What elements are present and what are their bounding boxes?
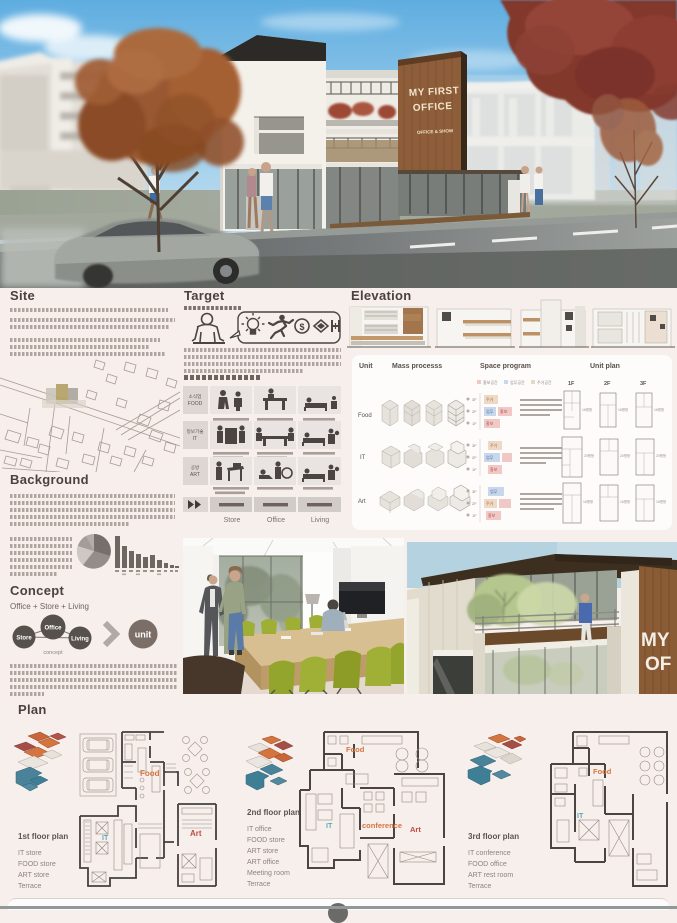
svg-text:OF: OF bbox=[645, 654, 671, 675]
svg-text:1F: 1F bbox=[472, 421, 477, 426]
svg-text:Store: Store bbox=[16, 636, 32, 642]
svg-text:1F: 1F bbox=[472, 513, 477, 518]
svg-text:20평형: 20평형 bbox=[656, 453, 666, 458]
svg-text:FOOD: FOOD bbox=[188, 401, 203, 407]
svg-text:Art: Art bbox=[410, 825, 421, 834]
svg-text:Unit plan: Unit plan bbox=[590, 363, 620, 370]
svg-text:홍보: 홍보 bbox=[490, 466, 498, 472]
svg-text:MY: MY bbox=[641, 630, 670, 651]
svg-text:2F: 2F bbox=[604, 381, 611, 387]
svg-text:Art: Art bbox=[190, 829, 202, 838]
svg-text:공방: 공방 bbox=[191, 464, 200, 470]
svg-text:1F: 1F bbox=[568, 381, 575, 387]
svg-text:concept: concept bbox=[43, 650, 63, 656]
svg-text:Unit: Unit bbox=[359, 363, 373, 370]
svg-text:3F: 3F bbox=[472, 489, 477, 494]
svg-text:2F: 2F bbox=[472, 501, 477, 506]
svg-text:1F: 1F bbox=[472, 467, 477, 472]
svg-text:홍보: 홍보 bbox=[500, 408, 508, 414]
svg-text:Living: Living bbox=[71, 637, 89, 643]
svg-text:주거공간: 주거공간 bbox=[537, 379, 552, 385]
svg-text:홍보공간: 홍보공간 bbox=[483, 379, 498, 385]
svg-text:16평형: 16평형 bbox=[620, 499, 630, 504]
svg-text:16평형: 16평형 bbox=[618, 407, 628, 412]
svg-text:OFFICE: OFFICE bbox=[413, 101, 453, 114]
svg-text:정보기술: 정보기술 bbox=[187, 428, 204, 435]
svg-text:2F: 2F bbox=[472, 455, 477, 460]
svg-text:20평형: 20평형 bbox=[620, 453, 630, 458]
svg-text:ART: ART bbox=[190, 472, 200, 478]
svg-text:16평형: 16평형 bbox=[582, 407, 592, 412]
svg-text:주거: 주거 bbox=[486, 500, 494, 506]
svg-text:3F: 3F bbox=[472, 397, 477, 402]
svg-text:conference: conference bbox=[362, 821, 402, 830]
svg-text:Mass processs: Mass processs bbox=[392, 363, 442, 370]
svg-text:Food: Food bbox=[358, 413, 372, 419]
svg-text:Food: Food bbox=[346, 745, 365, 754]
svg-text:업무: 업무 bbox=[486, 454, 494, 460]
svg-text:unit: unit bbox=[135, 630, 152, 640]
svg-text:IT: IT bbox=[102, 835, 109, 842]
svg-text:IT: IT bbox=[326, 823, 333, 830]
svg-text:2F: 2F bbox=[472, 409, 477, 414]
svg-text:Food: Food bbox=[140, 769, 160, 778]
svg-text:IT: IT bbox=[577, 813, 584, 820]
svg-text:3F: 3F bbox=[640, 381, 647, 387]
svg-text:소식업: 소식업 bbox=[189, 393, 202, 400]
svg-text:업무: 업무 bbox=[490, 488, 498, 494]
svg-text:Art: Art bbox=[358, 499, 366, 505]
svg-text:3F: 3F bbox=[472, 443, 477, 448]
svg-text:주거: 주거 bbox=[486, 396, 494, 402]
svg-text:20평형: 20평형 bbox=[584, 453, 594, 458]
svg-text:16평형: 16평형 bbox=[656, 499, 666, 504]
svg-text:업무: 업무 bbox=[486, 408, 494, 414]
svg-text:$: $ bbox=[299, 322, 304, 332]
svg-text:IT: IT bbox=[193, 436, 197, 442]
svg-text:홍보: 홍보 bbox=[488, 512, 496, 518]
svg-text:Office: Office bbox=[44, 626, 62, 632]
svg-text:Space program: Space program bbox=[480, 363, 531, 370]
svg-text:16평형: 16평형 bbox=[583, 499, 593, 504]
svg-text:홍보: 홍보 bbox=[486, 420, 494, 426]
svg-text:주거: 주거 bbox=[490, 442, 498, 448]
svg-text:IT: IT bbox=[360, 455, 366, 461]
svg-text:업무공간: 업무공간 bbox=[510, 379, 525, 385]
svg-text:16평형: 16평형 bbox=[654, 407, 664, 412]
svg-text:Food: Food bbox=[593, 767, 612, 776]
